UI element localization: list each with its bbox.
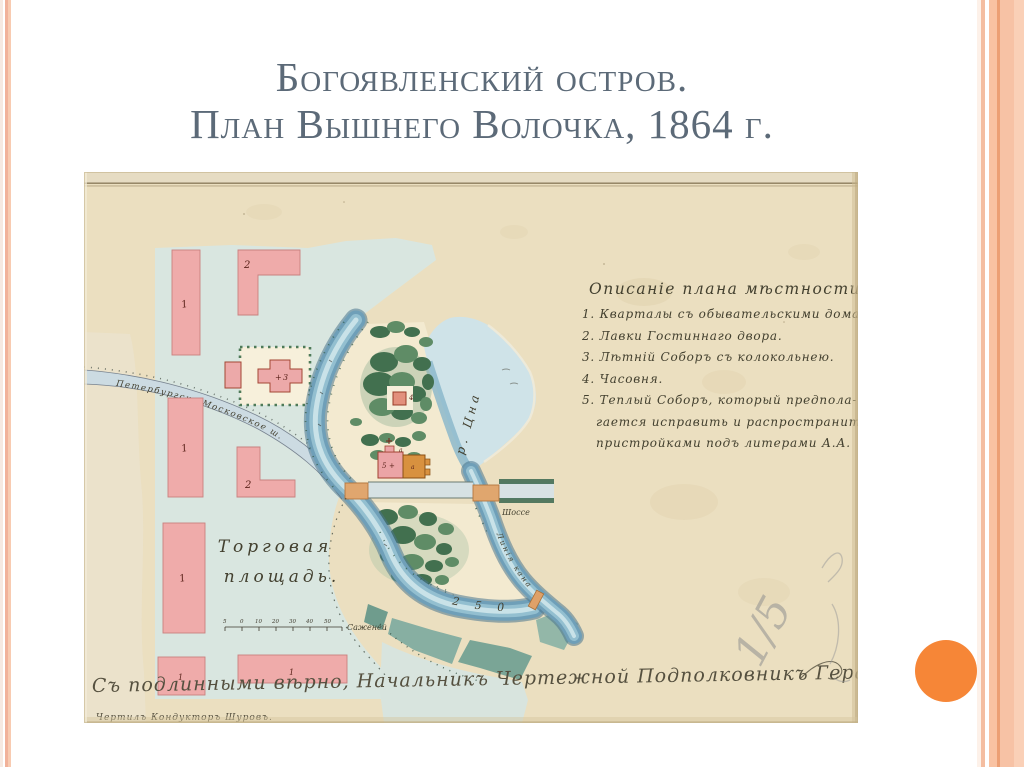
scale-tick-label: 30 [289,619,296,625]
legend-item: 1. Кварталы съ обывательскими домами. [582,307,858,321]
slide-title: Богоявленский остров. План Вышнего Волоч… [24,54,940,148]
scale-tick-label: 40 [305,619,313,625]
scale-tick-label: 20 [271,619,279,625]
legend-title: Описаніе плана мѣстности. [589,280,858,298]
map-svg: Петербургско-Московское ш. 1 1 1 1 1 2 2 [84,172,858,723]
scale-tick-label: 10 [255,619,262,625]
slide-canvas: Богоявленский остров. План Вышнего Волоч… [0,0,1024,767]
annex-letter-a1: а [411,464,415,471]
cross-mark: + [275,373,282,382]
left-accent-stripe-outer [0,0,3,767]
annex-letter-a2: а [399,447,403,454]
scale-tick-label: 5 [223,619,227,625]
legend-item-continuation: пристройками подъ литерами А.А. [596,436,851,450]
east-bridge [473,485,499,501]
warm-cathedral-label: 5 [382,462,387,470]
shosse-label: Шоссе [501,508,530,517]
title-line-1: Богоявленский остров. [24,54,940,101]
summer-cathedral-label: 3 [283,373,288,382]
legend-item: 5. Теплый Соборъ, который предпола- [582,393,857,407]
scale-unit-label: Саженей [347,623,387,632]
right-accent-band [989,0,1024,767]
west-bridge [345,483,368,499]
block-label-shops: 2 [244,480,251,491]
legend-item: 2. Лавки Гостиннаго двора. [581,329,782,343]
legend-item-continuation: гается исправить и распространить [596,415,858,429]
market-square-label-1: Торговая [218,537,333,557]
title-line-2: План Вышнего Волочка, 1864 г. [24,101,940,148]
block-label-shops: 2 [243,260,250,271]
scale-tick-label: 50 [324,619,331,625]
bell-tower [225,362,241,388]
cross-mark-2: + [389,462,395,470]
historical-map-image: Петербургско-Московское ш. 1 1 1 1 1 2 2 [84,172,858,723]
accent-circle [915,640,977,702]
road-east-segment [499,483,554,499]
chapel-label: 4 [408,394,413,402]
right-accent-stripe-thin [977,0,985,767]
left-accent-stripe-inner [8,0,11,767]
legend-item: 3. Лѣтній Соборъ съ колокольнею. [582,350,834,364]
market-square-label-2: площадь. [224,567,341,587]
paper-fold-line [84,183,858,184]
scale-tick-label: 0 [240,619,244,625]
legend-item: 4. Часовня. [581,372,663,386]
